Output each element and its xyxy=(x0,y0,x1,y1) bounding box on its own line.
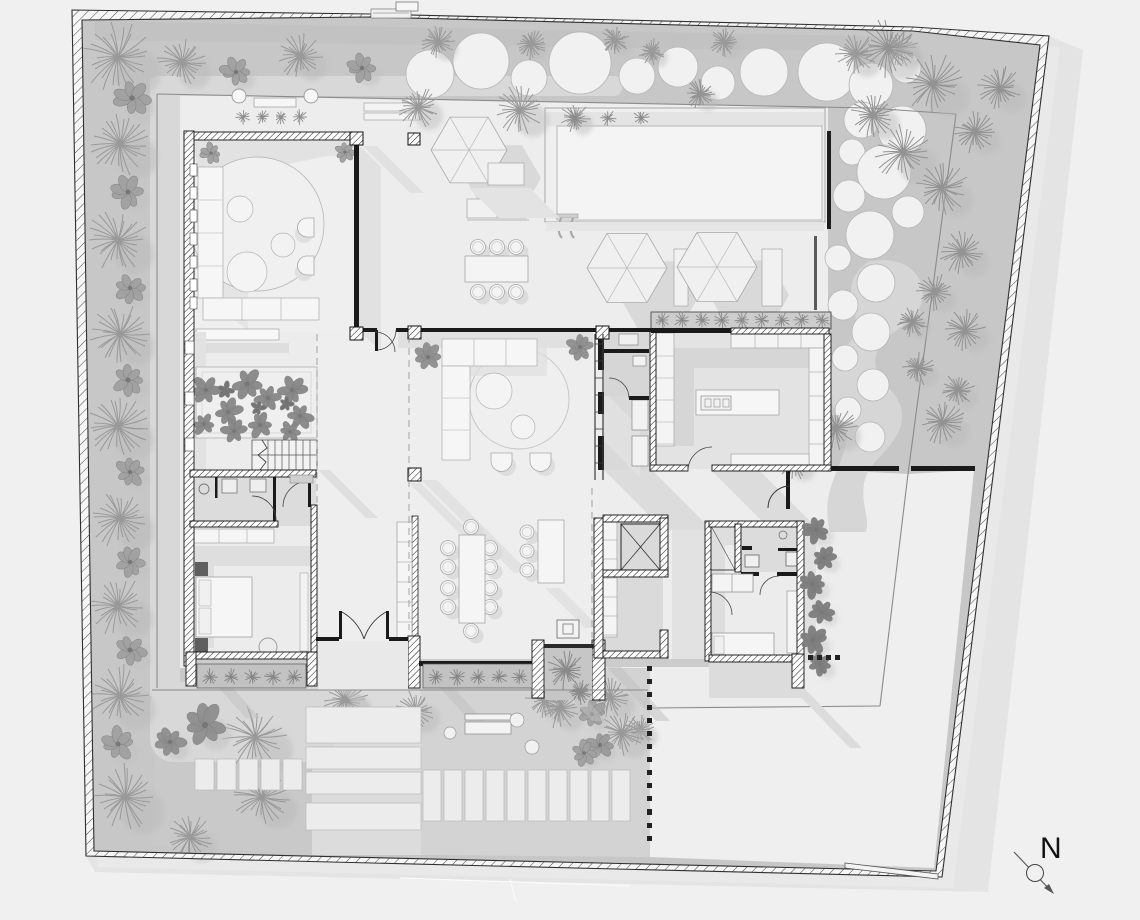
svg-text:N: N xyxy=(1040,832,1062,865)
